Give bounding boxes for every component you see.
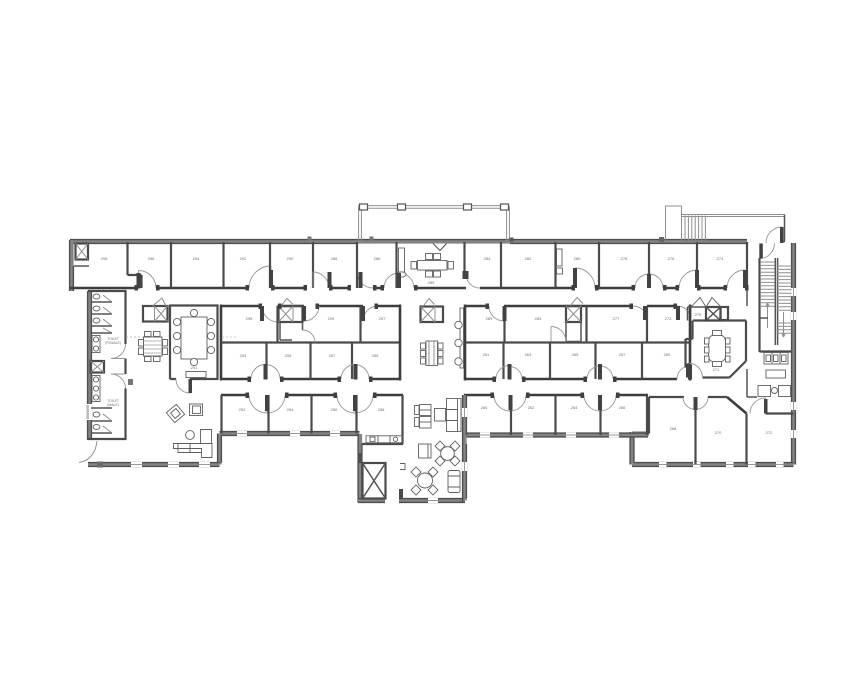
svg-text:296: 296 xyxy=(148,256,155,261)
svg-text:283: 283 xyxy=(535,316,542,321)
svg-text:272: 272 xyxy=(766,430,773,435)
svg-text:286: 286 xyxy=(374,256,381,261)
svg-text:263: 263 xyxy=(525,352,532,357)
svg-text:282: 282 xyxy=(525,256,532,261)
svg-text:264: 264 xyxy=(571,405,578,410)
svg-text:290: 290 xyxy=(287,256,294,261)
svg-text:275: 275 xyxy=(695,312,702,317)
svg-text:278: 278 xyxy=(621,256,628,261)
svg-text:276: 276 xyxy=(668,256,675,261)
svg-text:280: 280 xyxy=(574,256,581,261)
svg-text:271: 271 xyxy=(713,367,720,372)
svg-text:289: 289 xyxy=(486,316,493,321)
svg-text:255: 255 xyxy=(285,353,292,358)
svg-text:297: 297 xyxy=(379,316,386,321)
svg-text:299: 299 xyxy=(328,316,335,321)
svg-text:292: 292 xyxy=(240,256,247,261)
svg-text:(FEMALE): (FEMALE) xyxy=(105,341,121,345)
svg-text:253: 253 xyxy=(240,353,247,358)
svg-text:(MALE): (MALE) xyxy=(107,403,119,407)
svg-text:251: 251 xyxy=(191,365,198,370)
svg-text:254: 254 xyxy=(287,407,294,412)
svg-text:256: 256 xyxy=(331,407,338,412)
svg-text:261: 261 xyxy=(483,352,490,357)
svg-text:262: 262 xyxy=(528,405,535,410)
svg-text:265: 265 xyxy=(572,352,579,357)
svg-text:259: 259 xyxy=(372,353,379,358)
svg-text:258: 258 xyxy=(378,407,385,412)
svg-text:267: 267 xyxy=(619,352,626,357)
svg-text:298: 298 xyxy=(101,256,108,261)
svg-text:273: 273 xyxy=(665,316,672,321)
svg-text:268: 268 xyxy=(670,426,677,431)
svg-text:270: 270 xyxy=(715,430,722,435)
svg-text:252: 252 xyxy=(239,407,246,412)
svg-text:277: 277 xyxy=(613,316,620,321)
svg-text:269: 269 xyxy=(664,352,671,357)
svg-text:260: 260 xyxy=(481,405,488,410)
svg-text:274: 274 xyxy=(717,256,724,261)
svg-text:288: 288 xyxy=(331,256,338,261)
svg-text:284: 284 xyxy=(484,256,491,261)
svg-text:294: 294 xyxy=(193,256,200,261)
svg-text:266: 266 xyxy=(619,405,626,410)
svg-text:257: 257 xyxy=(329,353,336,358)
svg-text:295: 295 xyxy=(246,316,253,321)
svg-text:285: 285 xyxy=(428,280,435,285)
